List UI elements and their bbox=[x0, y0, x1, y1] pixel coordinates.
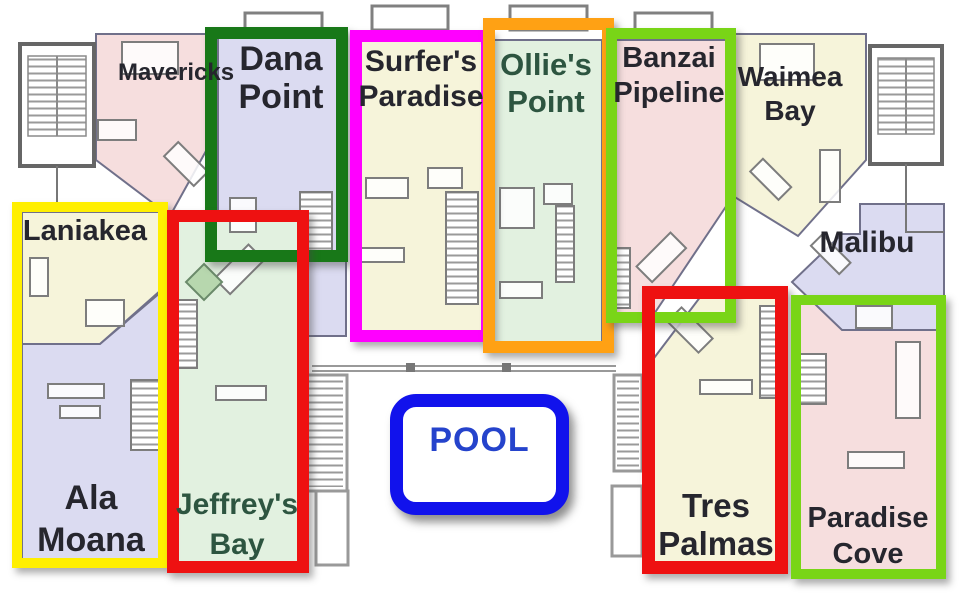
highlight-box-tres-palmas[interactable] bbox=[642, 286, 788, 574]
highlight-box-ollies-point[interactable] bbox=[483, 18, 614, 353]
courtyard-walkway bbox=[312, 363, 616, 372]
pool-label: POOL bbox=[429, 421, 529, 460]
courtyard-stairs-right bbox=[612, 375, 642, 556]
highlight-box-paradise-cove[interactable] bbox=[791, 295, 946, 579]
highlight-box-jeffreys-bay[interactable] bbox=[167, 210, 309, 573]
pool-badge[interactable]: POOL bbox=[390, 394, 569, 515]
highlight-box-surfers-paradise[interactable] bbox=[350, 30, 493, 342]
highlight-box-laniakea-ala-moana[interactable] bbox=[12, 202, 168, 568]
courtyard-stairs-left bbox=[303, 375, 348, 565]
highlight-box-banzai-pipeline[interactable] bbox=[606, 28, 736, 323]
stairwell-left bbox=[20, 44, 94, 206]
floorplan-canvas: POOL Mavericks Dana Point Surfer's Parad… bbox=[0, 0, 960, 596]
balcony bbox=[372, 6, 448, 30]
